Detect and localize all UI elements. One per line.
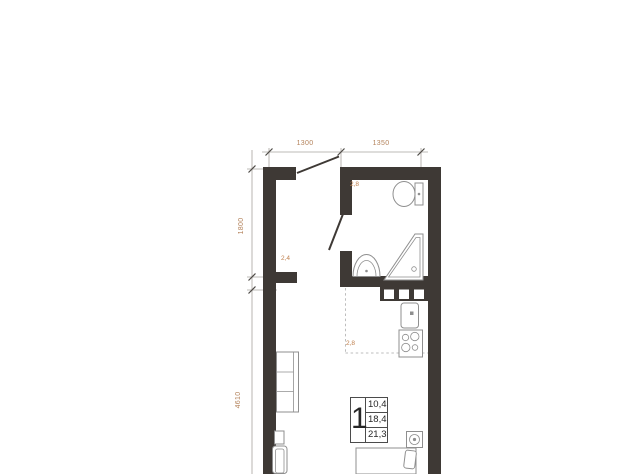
dimension-top-1300: 1300 bbox=[285, 140, 325, 148]
total-area-value: 18,4 bbox=[366, 413, 387, 428]
nightstand-icon bbox=[407, 432, 423, 448]
stove-icon bbox=[399, 330, 423, 357]
dimension-left-1800: 1800 bbox=[238, 206, 246, 246]
toilet-icon bbox=[393, 182, 423, 207]
kitchen-sink-icon bbox=[401, 303, 419, 328]
floor-plan: 1300 1350 1800 4610 2,8 2,4 2,8 1 10,4 1… bbox=[0, 0, 640, 474]
floor-plan-canvas bbox=[0, 0, 640, 474]
dimension-top-1350: 1350 bbox=[361, 140, 401, 148]
hall-cabinet-icon bbox=[273, 431, 288, 474]
shower-icon bbox=[384, 234, 423, 280]
apartment-info-box: 1 10,4 18,4 21,3 bbox=[350, 397, 388, 443]
bed-icon bbox=[356, 448, 417, 474]
washbasin-icon bbox=[353, 255, 380, 277]
living-area-value: 10,4 bbox=[366, 398, 387, 413]
dimension-line-top bbox=[262, 148, 428, 167]
bathroom-area-label: 2,8 bbox=[350, 181, 359, 188]
dimension-left-4610: 4610 bbox=[235, 380, 243, 420]
entrance-door-icon bbox=[297, 157, 339, 174]
wall-left bbox=[263, 167, 276, 474]
kitchen-cabinets-icon bbox=[380, 287, 428, 301]
pillow-icon bbox=[404, 450, 417, 469]
area-values: 10,4 18,4 21,3 bbox=[366, 398, 387, 442]
kitchen-area-label: 2,8 bbox=[346, 340, 355, 347]
hallway-area-label: 2,4 bbox=[281, 255, 290, 262]
rooms-count: 1 bbox=[351, 398, 366, 442]
bathroom-door-icon bbox=[329, 214, 343, 250]
wall-right bbox=[428, 167, 441, 474]
wall-top-right bbox=[340, 167, 441, 180]
overall-area-value: 21,3 bbox=[366, 428, 387, 442]
wall-bathroom-lower bbox=[340, 251, 352, 277]
wardrobe-icon bbox=[277, 352, 299, 412]
wall-hallway-stub bbox=[276, 272, 297, 283]
